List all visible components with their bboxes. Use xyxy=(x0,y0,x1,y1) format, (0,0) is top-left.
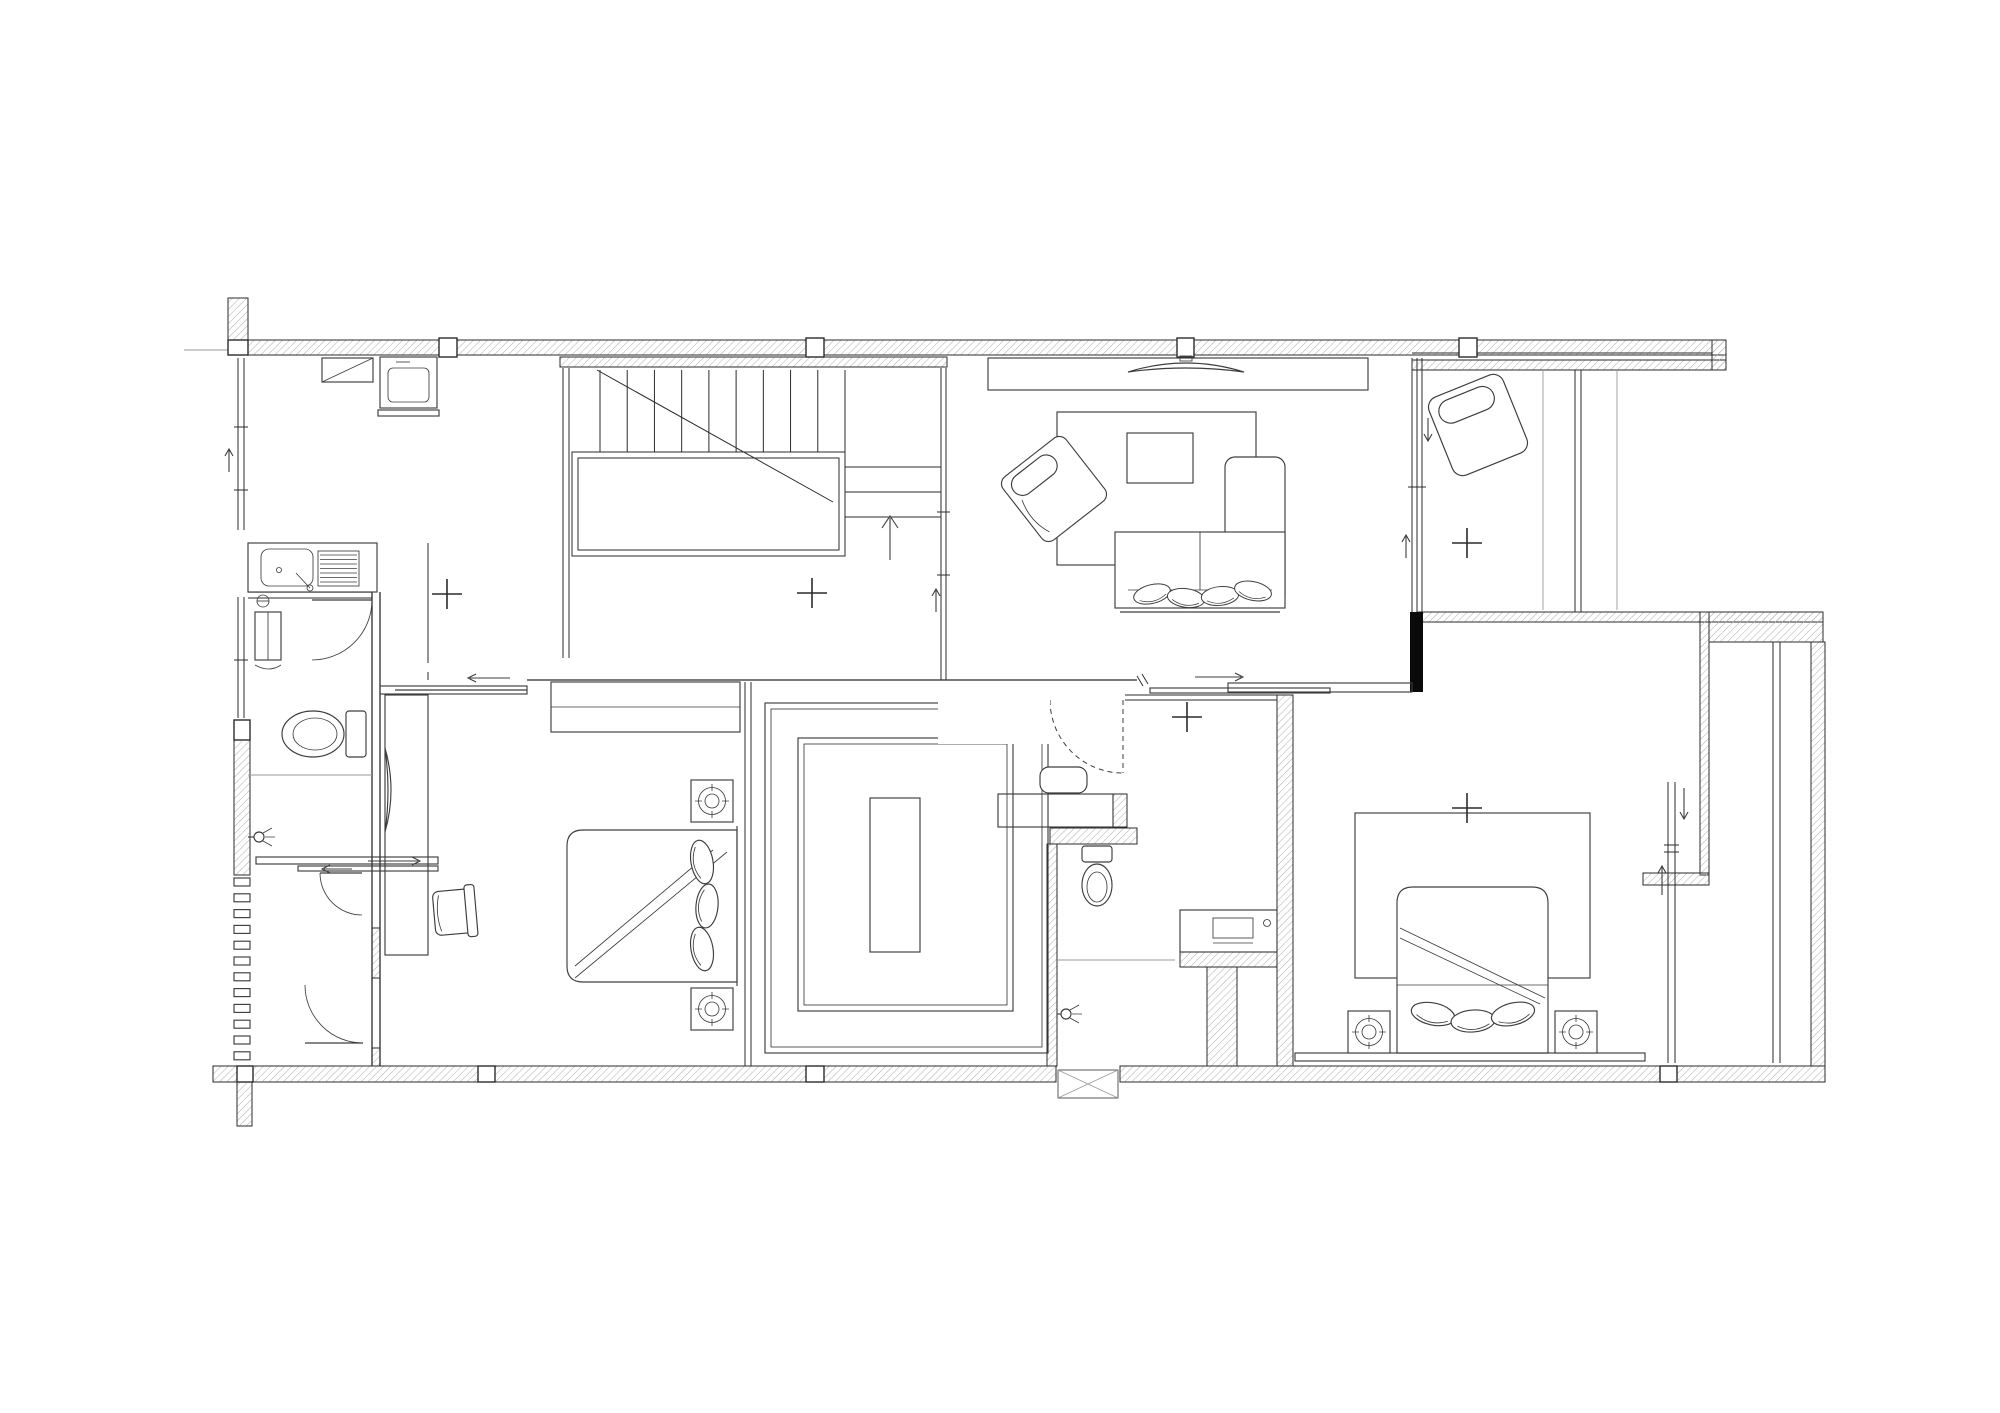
bathroom-center-counter-wall xyxy=(1050,828,1137,844)
column xyxy=(1660,1066,1677,1082)
south-wall xyxy=(1120,1066,1825,1082)
vanity-counter xyxy=(1180,910,1277,952)
terrace-glass-wall xyxy=(1773,642,1780,1063)
kitchen-sink xyxy=(248,543,377,592)
north-east-inner-wall xyxy=(1412,360,1726,370)
bed-west xyxy=(567,826,737,986)
window-living-east xyxy=(1408,358,1426,612)
sofa-l-shape xyxy=(1115,457,1285,612)
staircase xyxy=(572,370,941,612)
west-wall xyxy=(234,740,250,875)
window-arrows xyxy=(225,418,1688,895)
floor-plan-page xyxy=(0,0,2000,1413)
stair-up-arrow xyxy=(882,516,898,560)
floor-ledge xyxy=(1295,1053,1645,1061)
column xyxy=(806,1066,824,1082)
door-lobby-lower xyxy=(305,985,363,1043)
door-bathroom-west xyxy=(312,600,372,660)
column xyxy=(806,338,824,357)
toilet-center xyxy=(1082,846,1112,906)
stair-break-line xyxy=(597,370,833,502)
coffee-table xyxy=(1127,433,1193,483)
desk xyxy=(385,695,428,955)
column xyxy=(1177,338,1194,357)
washing-machine xyxy=(378,357,439,416)
stair-landing-inner xyxy=(578,458,839,550)
window-west-lower xyxy=(234,597,248,718)
desk-chair xyxy=(432,884,478,939)
lobby-wall-segment xyxy=(372,928,380,978)
wall-cabinet xyxy=(322,358,373,382)
sliding-door-bedroom-west xyxy=(380,674,527,694)
desk-tv xyxy=(385,748,391,832)
dressing-stool xyxy=(1040,767,1087,793)
toilet-west xyxy=(282,711,366,757)
window-west-upper xyxy=(234,358,248,530)
washbasin-cabinet xyxy=(255,595,281,669)
door-lobby-upper xyxy=(320,873,362,915)
vanity-pier xyxy=(1207,967,1237,1066)
louver-slats xyxy=(234,878,250,1060)
south-west-pier xyxy=(237,1082,252,1126)
vanity-base-wall xyxy=(1180,952,1277,967)
wardrobe-u-shape xyxy=(765,698,1050,1053)
dresser-cabinet xyxy=(551,682,740,732)
sliding-door-bathroom-west xyxy=(256,857,438,873)
ac-outdoor-unit-box xyxy=(1058,1070,1118,1098)
east-wall xyxy=(1811,642,1825,1066)
door-bathroom-center xyxy=(1050,700,1123,773)
glass-partition xyxy=(937,368,950,680)
column xyxy=(228,340,248,355)
floor-plan-svg xyxy=(0,0,2000,1413)
shower-head-center xyxy=(1057,1005,1082,1023)
column xyxy=(234,720,250,740)
column xyxy=(237,1066,253,1082)
column xyxy=(439,338,457,357)
armchair xyxy=(998,433,1110,545)
shower-head-west xyxy=(248,828,275,846)
bed-east xyxy=(1397,887,1548,1053)
counter-end-wall xyxy=(1113,794,1127,827)
terrace-sliding-door xyxy=(1664,782,1679,1063)
solid-wall-fill xyxy=(1410,612,1423,692)
column xyxy=(1459,338,1477,357)
centerline-cross-markers xyxy=(432,528,1482,823)
south-wall xyxy=(213,1066,1056,1082)
small-up-arrow xyxy=(932,589,940,612)
column xyxy=(228,298,248,340)
lobby-wall-segment xyxy=(372,1048,380,1066)
terrace-l-wall-cap xyxy=(1643,873,1709,885)
wardrobe-island xyxy=(870,798,920,952)
terrace-l-wall xyxy=(1700,612,1709,875)
north-east-wall-cap xyxy=(1712,340,1726,370)
dressing-counter xyxy=(998,794,1113,827)
column xyxy=(478,1066,495,1082)
bathroom-bedroom-divider-wall xyxy=(1277,695,1293,1066)
terrace-north-block xyxy=(1709,612,1823,642)
wall-break-mark xyxy=(1137,674,1148,686)
stair-hall-wall-lining xyxy=(560,357,947,367)
stair-landing xyxy=(572,452,845,556)
lounge-chair xyxy=(1425,371,1531,479)
sliding-door-bedroom-east xyxy=(1150,673,1412,693)
